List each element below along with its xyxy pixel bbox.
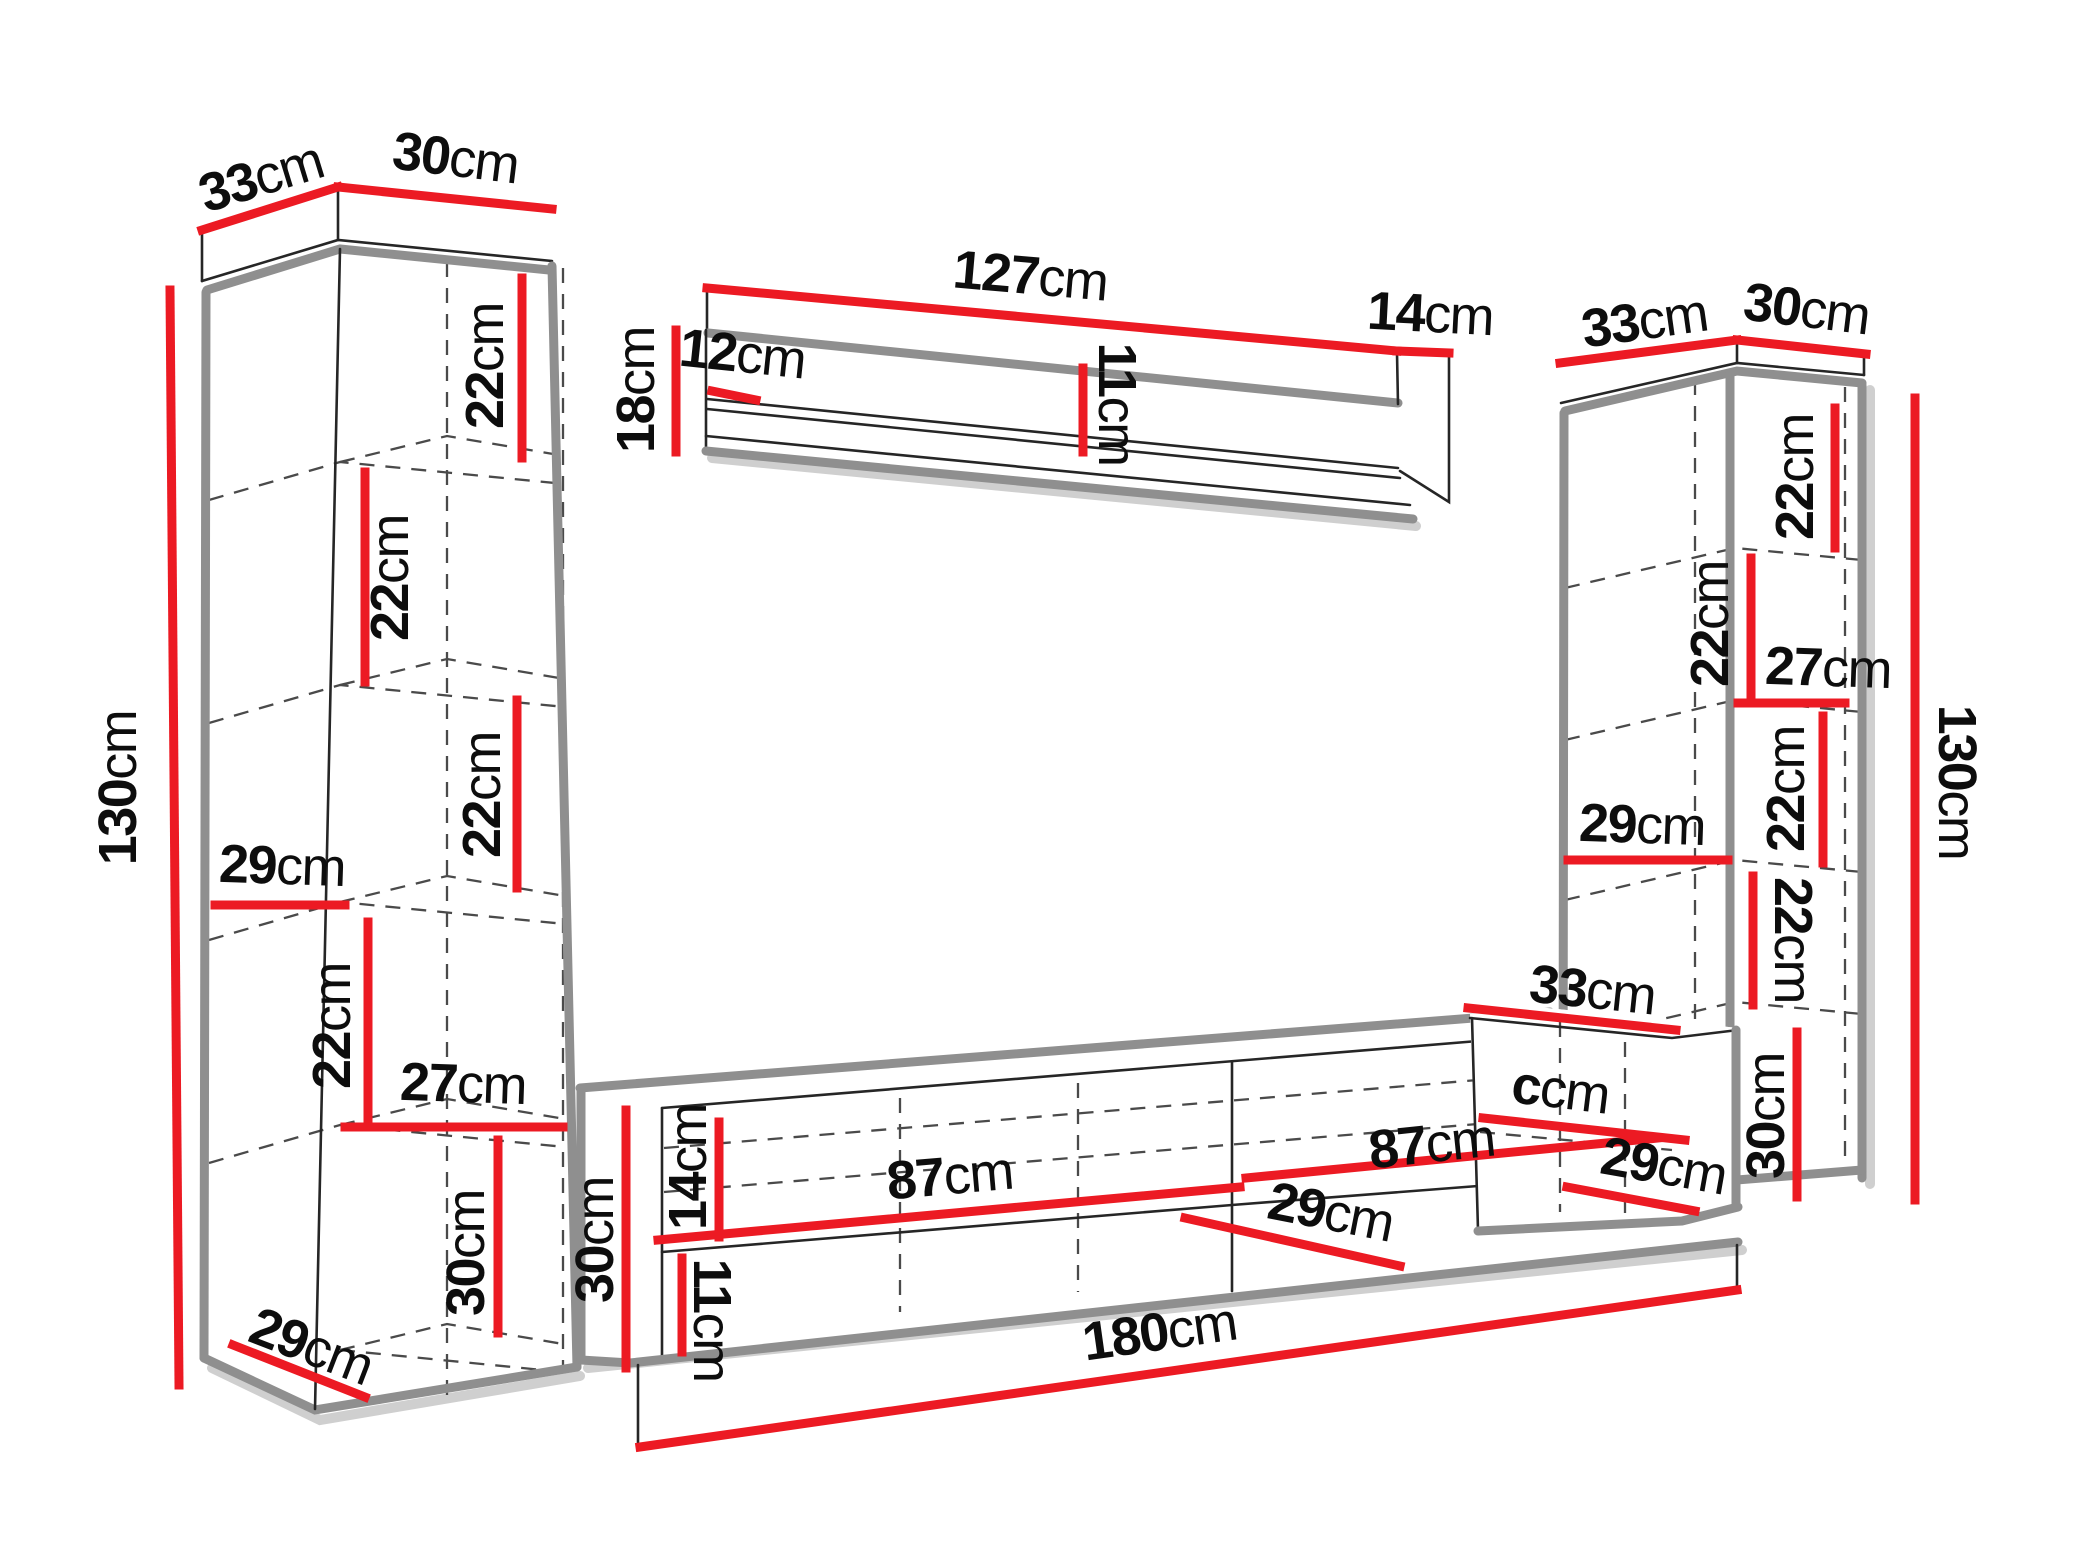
edge <box>204 292 206 1358</box>
dim-tv-stand-right-end-partial: ccm <box>1508 1055 1612 1126</box>
dim-right-cabinet-top-width: 30cm <box>1740 272 1872 347</box>
dim-tv-stand-right-end-height: 30cm <box>1736 1053 1796 1179</box>
dim-left-cabinet-shelf4: 22cm <box>302 963 362 1089</box>
dim-left-cabinet-height: 130cm <box>88 711 148 866</box>
dim-left-cabinet-shelf3: 22cm <box>452 732 512 858</box>
dim-right-cabinet-inner-width: 27cm <box>1764 636 1892 700</box>
dim-tv-stand-height: 30cm <box>565 1177 625 1303</box>
dim-left-cabinet-bottom-section: 30cm <box>436 1190 496 1316</box>
dim-right-cabinet-height: 130cm <box>1927 705 1987 860</box>
dimension-line-top-width <box>338 187 552 209</box>
dim-wall-shelf-back-panel: 12cm <box>677 318 809 391</box>
dim-wall-shelf-length: 127cm <box>951 240 1110 313</box>
furniture-dimension-diagram: 33cm 30cm 130cm 22cm 22cm 22cm 29cm 22cm… <box>0 0 2087 1565</box>
dim-left-cabinet-inner-width: 27cm <box>399 1052 527 1116</box>
dim-left-cabinet-top-width: 30cm <box>389 121 521 196</box>
dim-left-cabinet-shelf1: 22cm <box>455 303 515 429</box>
wall-shelf: 127cm 18cm 12cm 11cm 14cm <box>606 240 1494 526</box>
dimension-line-end-depth <box>1397 351 1449 353</box>
dim-right-cabinet-shelf1: 22cm <box>1765 414 1825 540</box>
left-cabinet: 33cm 30cm 130cm 22cm 22cm 22cm 29cm 22cm… <box>88 121 580 1420</box>
dim-left-cabinet-inner-depth: 29cm <box>218 834 346 898</box>
dim-wall-shelf-end-depth: 14cm <box>1366 281 1495 348</box>
dim-wall-shelf-inner-height: 11cm <box>1087 342 1147 465</box>
dim-right-cabinet-inner-depth: 29cm <box>1578 793 1706 857</box>
dim-tv-stand-left-section: 87cm <box>884 1141 1015 1212</box>
outline <box>1397 353 1398 404</box>
dim-left-cabinet-shelf2: 22cm <box>360 515 420 641</box>
dim-right-cabinet-shelf3: 22cm <box>1756 726 1816 852</box>
dim-wall-shelf-height: 18cm <box>606 327 666 453</box>
dim-right-cabinet-shelf4: 22cm <box>1763 877 1823 1003</box>
dimension-line-height <box>170 290 179 1385</box>
dim-tv-stand-opening: 11cm <box>682 1258 742 1381</box>
dim-tv-stand-top-panel: 14cm <box>658 1104 718 1230</box>
dim-right-cabinet-shelf2: 22cm <box>1680 561 1740 687</box>
tv-stand: 30cm 14cm 11cm 87cm 87cm 29cm 33cm ccm 2… <box>565 954 1797 1450</box>
diagram-canvas: 33cm 30cm 130cm 22cm 22cm 22cm 29cm 22cm… <box>0 0 2087 1565</box>
